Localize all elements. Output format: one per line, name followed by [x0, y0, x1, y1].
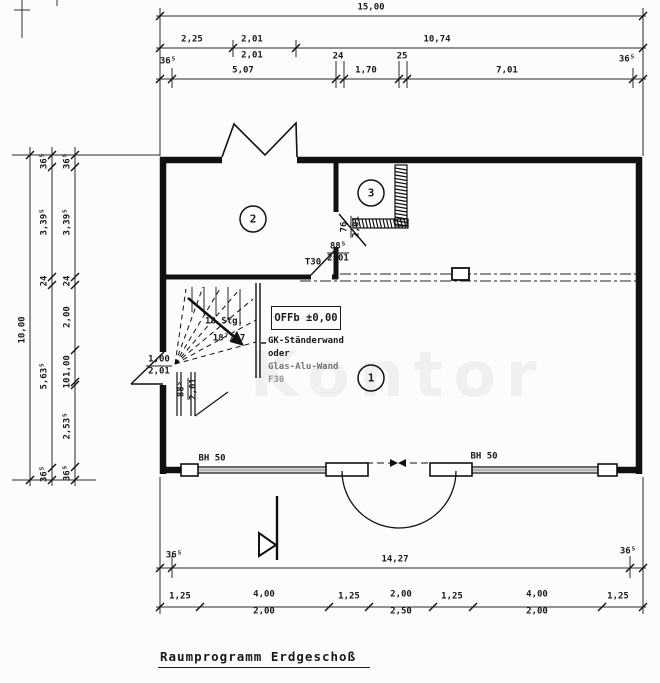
dim-label: 36⁵: [620, 548, 636, 557]
dim-label: 2,00: [64, 306, 73, 328]
wall-note-line1: GK-Ständerwand: [268, 335, 344, 348]
room-label-2: 2: [250, 213, 257, 226]
stair-ratio-label: 18⁷/27: [213, 335, 246, 344]
wall-note-line4: F30: [268, 374, 344, 387]
dim-label: 24: [64, 276, 73, 287]
wall-note-line2: oder: [268, 348, 344, 361]
dim-label: 2,01: [241, 36, 263, 45]
dim-label: 10: [64, 378, 73, 389]
door-t30-size: 88⁵2,01: [327, 243, 349, 264]
dim-label: 1,25: [338, 593, 360, 602]
pillar: [452, 268, 469, 280]
dim-label: 1,00: [64, 355, 73, 377]
room-label-3: 3: [368, 187, 375, 200]
section-marker: [259, 496, 277, 560]
dim-left-total: 10,00: [19, 316, 28, 343]
dim-label: 24: [41, 276, 50, 287]
window-sill-label-right: BH 50: [470, 453, 497, 462]
dim-label: 2,25: [181, 36, 203, 45]
door-room3-size: 762,01: [341, 216, 362, 238]
window-sill-label-left: BH 50: [198, 455, 225, 464]
level-label-box: OFFb ±0,00: [271, 306, 341, 330]
scan-marks: [14, 0, 57, 38]
drawing-title: Raumprogramm Erdgeschoß: [158, 649, 370, 668]
door-entry-size-height: 2,01: [146, 367, 172, 377]
room-label-1: 1: [368, 372, 375, 385]
dim-label: 2,00: [526, 608, 548, 617]
dim-label: 2,53⁵: [64, 412, 73, 439]
dim-label: 4,00: [253, 591, 275, 600]
stair-count-label: 18 Stg.: [205, 318, 243, 327]
dim-label: 2,00: [253, 608, 275, 617]
dim-label: 1,25: [169, 593, 191, 602]
dim-label: 36⁵: [41, 466, 50, 482]
dim-label: 36⁵: [64, 153, 73, 169]
dim-label: 3,39⁵: [41, 208, 50, 235]
wall-note: GK-Ständerwand oder Glas-Alu-Wand F30: [268, 335, 344, 387]
door-axis-symbol: [390, 459, 406, 467]
dim-label: 2,50: [390, 608, 412, 617]
door-t30-label: T30: [305, 259, 321, 268]
dim-label: 36⁵: [41, 153, 50, 169]
door-t30-size-height: 2,01: [327, 254, 349, 264]
dim-label: 36⁵: [166, 552, 182, 561]
floor-plan-page: OFFb ±0,00 GK-Ständerwand oder Glas-Alu-…: [0, 0, 660, 683]
dim-label: 1,25: [441, 593, 463, 602]
dim-label: 36⁵: [160, 58, 176, 67]
door-entry-size: 1,002,01: [146, 356, 172, 377]
dim-label: 36⁵: [64, 465, 73, 481]
door-vestibule-size-height: 2,01: [189, 378, 199, 400]
dim-label: 2,00: [390, 591, 412, 600]
dim-label: 1,25: [607, 593, 629, 602]
door-vestibule-size: 88⁵2,01: [178, 378, 199, 400]
dim-label: 4,00: [526, 591, 548, 600]
dim-label: 1,70: [355, 67, 377, 76]
dim-label: 5,07: [232, 67, 254, 76]
door-room3-size-width: 76: [341, 216, 352, 238]
dim-label: 10,74: [423, 36, 450, 45]
door-room3-size-height: 2,01: [352, 216, 362, 238]
dim-top-total: 15,00: [357, 4, 384, 13]
dim-label: 2,01: [241, 52, 263, 61]
dim-label: 3,39⁵: [64, 208, 73, 235]
walls-outer: [160, 157, 641, 474]
dim-label: 5,63⁵: [41, 362, 50, 389]
dim-label: 14,27: [381, 556, 408, 565]
dim-label: 25: [397, 53, 408, 62]
door-t30-size-width: 88⁵: [327, 243, 349, 254]
wall-gk-staender: [256, 283, 266, 378]
door-entry-size-width: 1,00: [146, 356, 172, 367]
windows: [181, 463, 617, 476]
dim-label: 24: [333, 53, 344, 62]
door-vestibule-size-width: 88⁵: [178, 378, 189, 400]
dim-label: 36⁵: [619, 56, 635, 65]
wall-note-line3: Glas-Alu-Wand: [268, 361, 344, 374]
dim-label: 7,01: [496, 67, 518, 76]
bay-zigzag: [222, 123, 297, 157]
